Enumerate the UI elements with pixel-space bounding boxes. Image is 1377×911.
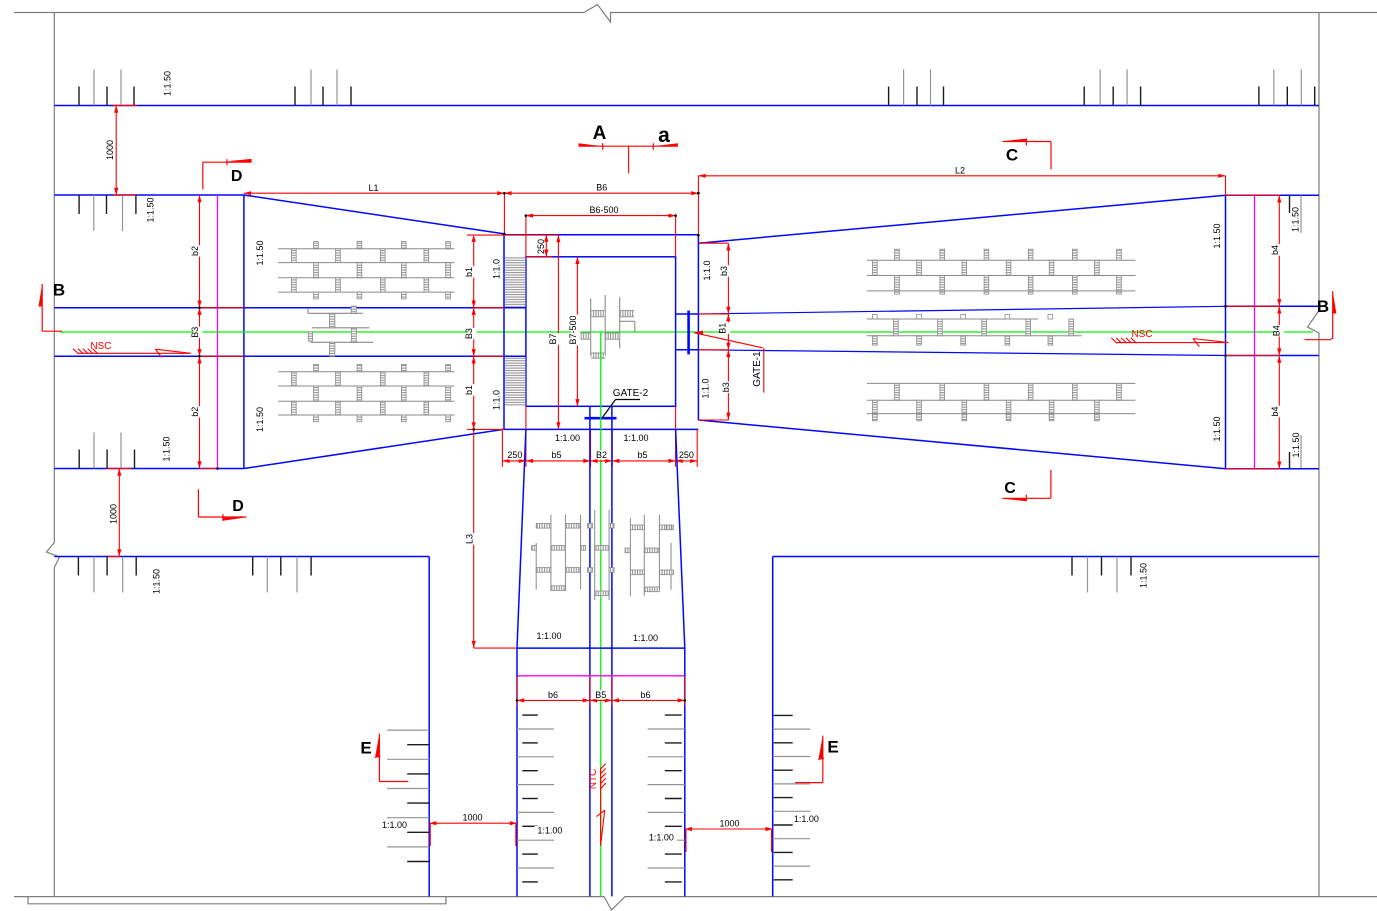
svg-text:1:1.00: 1:1.00 (794, 814, 819, 824)
svg-text:NTC: NTC (588, 769, 599, 790)
svg-text:b5: b5 (637, 450, 647, 460)
svg-text:E: E (827, 737, 838, 756)
svg-text:B5: B5 (595, 690, 606, 700)
svg-text:L3: L3 (464, 534, 474, 544)
svg-text:1:1.00: 1:1.00 (536, 631, 561, 641)
svg-text:B6: B6 (596, 183, 607, 193)
svg-text:B3: B3 (464, 328, 474, 339)
svg-text:1:1.50: 1:1.50 (145, 197, 155, 222)
svg-text:D: D (232, 498, 244, 515)
svg-text:1:1.50: 1:1.50 (255, 407, 265, 432)
svg-text:E: E (360, 738, 371, 757)
svg-text:1:1.00: 1:1.00 (633, 633, 658, 643)
svg-text:b4: b4 (1270, 406, 1280, 416)
svg-text:L1: L1 (368, 183, 378, 193)
svg-text:B4: B4 (1271, 325, 1281, 336)
svg-text:1:1.50: 1:1.50 (255, 240, 265, 265)
svg-text:1:1.50: 1:1.50 (1291, 432, 1301, 457)
svg-text:1:1.0: 1:1.0 (491, 390, 501, 410)
svg-text:a: a (658, 124, 670, 147)
svg-text:1:1.50: 1:1.50 (151, 569, 161, 594)
svg-text:GATE-1: GATE-1 (752, 351, 763, 387)
svg-text:b4: b4 (1270, 245, 1280, 255)
svg-text:D: D (231, 168, 243, 185)
svg-text:NSC: NSC (1131, 329, 1152, 340)
svg-text:1:1.50: 1:1.50 (1290, 207, 1300, 232)
svg-text:b6: b6 (640, 690, 650, 700)
svg-text:b3: b3 (719, 266, 729, 276)
svg-text:b5: b5 (551, 450, 561, 460)
svg-text:GATE-2: GATE-2 (613, 388, 649, 399)
svg-text:1:1.50: 1:1.50 (1212, 416, 1222, 441)
svg-text:B6-500: B6-500 (589, 205, 618, 215)
svg-text:A: A (593, 123, 607, 144)
svg-text:1:1.50: 1:1.50 (161, 436, 171, 461)
svg-text:B7-500: B7-500 (568, 315, 578, 344)
svg-text:B7: B7 (548, 333, 558, 344)
svg-text:250: 250 (536, 239, 546, 254)
svg-text:1:1.00: 1:1.00 (623, 433, 648, 443)
svg-text:b6: b6 (548, 690, 558, 700)
svg-text:1:1.0: 1:1.0 (700, 378, 710, 398)
svg-text:1000: 1000 (108, 504, 118, 524)
svg-text:B1: B1 (718, 323, 728, 334)
svg-text:1:1.50: 1:1.50 (162, 71, 172, 96)
svg-text:b2: b2 (190, 246, 200, 256)
svg-text:1000: 1000 (719, 818, 739, 828)
svg-text:1:1.50: 1:1.50 (1138, 563, 1148, 588)
svg-text:B3: B3 (190, 327, 200, 338)
svg-text:B: B (53, 281, 65, 300)
svg-text:250: 250 (507, 450, 522, 460)
svg-text:1:1.50: 1:1.50 (1212, 223, 1222, 248)
svg-text:1:1.0: 1:1.0 (702, 260, 712, 280)
svg-text:B: B (1317, 297, 1329, 316)
svg-text:1:1.00: 1:1.00 (649, 833, 674, 843)
svg-text:b1: b1 (464, 267, 474, 277)
svg-text:1000: 1000 (462, 813, 482, 823)
svg-text:1000: 1000 (105, 140, 115, 160)
svg-text:b2: b2 (190, 407, 200, 417)
svg-text:250: 250 (679, 450, 694, 460)
svg-text:1:1.00: 1:1.00 (555, 433, 580, 443)
svg-text:B2: B2 (596, 450, 607, 460)
svg-text:C: C (1004, 480, 1016, 497)
svg-text:b3: b3 (721, 382, 731, 392)
svg-text:1:1.00: 1:1.00 (382, 820, 407, 830)
svg-text:C: C (1006, 146, 1018, 165)
svg-text:L2: L2 (955, 166, 965, 176)
svg-text:1:1.00: 1:1.00 (537, 826, 562, 836)
svg-text:b1: b1 (464, 385, 474, 395)
svg-text:NSC: NSC (90, 341, 111, 352)
svg-text:1:1.0: 1:1.0 (491, 259, 501, 279)
